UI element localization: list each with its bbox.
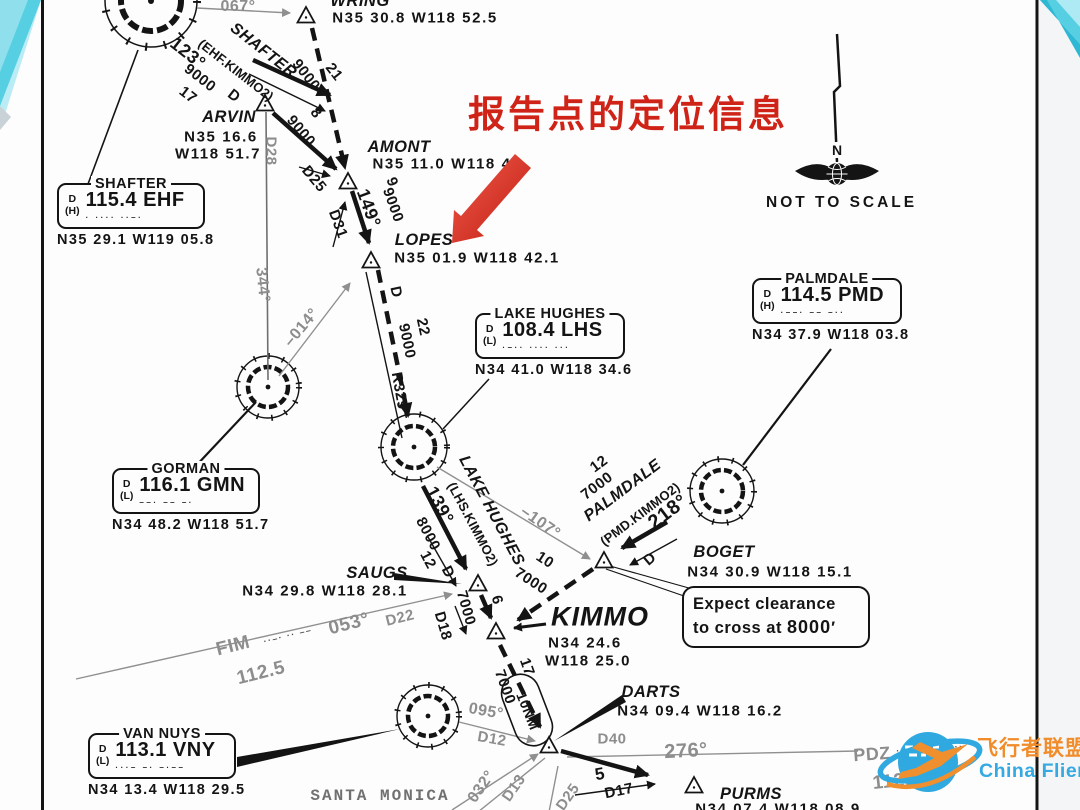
vor-rose-van-nuys [397,685,459,747]
fix-wring-coords: N35 30.8 W118 52.5 [332,11,498,26]
navaid-name: SHAFTER [91,176,171,192]
annotation-title: 报告点的定位信息 [468,84,788,138]
fix-darts-coords: N34 09.4 W118 16.2 [617,704,783,719]
fix-kimmo-lat: N34 24.6 [548,636,622,651]
fix-kimmo-lon: W118 25.0 [545,654,631,669]
navaid-frequency: 116.1 GMN [139,474,245,497]
fix-darts-name: DARTS [621,684,680,701]
expect-altitude: 8000 [787,617,831,637]
navaid-frame: SHAFTERD(H)115.4 EHF· ···· ··–· [57,183,205,229]
fix-saugs-coords: N34 29.8 W118 28.1 [242,584,408,599]
navaid-morse-code: ·–·· ···· ··· [502,343,602,352]
navaid-morse-code: ·––· –– –·· [781,308,884,317]
navaid-frequency: 115.4 EHF [86,189,185,212]
navaid-frame: VAN NUYSD(L)113.1 VNY···– –· –·–– [88,733,236,779]
expect-clearance-note: Expect clearance to cross at 8000′ [682,586,870,648]
fix-amont-name: AMONT [368,139,431,156]
navaid-pdz: PDZ [853,744,892,765]
corner-decoration-top-left [0,0,41,130]
expect-line2: to cross at 8000′ [693,615,859,639]
navaid-name: VAN NUYS [119,726,205,742]
fix-kimmo-name: KIMMO [551,604,649,631]
fix-lopes-name: LOPES [395,232,453,249]
navaid-class: D(L) [120,479,133,501]
navaid-box-lake-hughes: LAKE HUGHESD(L)108.4 LHS·–·· ···· ···N34… [475,313,625,378]
navaid-class: D(H) [760,289,775,311]
fix-arvin-lon: W118 51.7 [175,147,261,162]
fix-arvin-name: ARVIN [202,109,256,126]
fix-lopes-coords: N35 01.9 W118 42.1 [394,251,560,266]
navaid-class: D(H) [65,194,80,216]
navaid-class: D(L) [96,744,109,766]
north-arrow [795,34,879,185]
dme-d40: D40 [597,732,626,747]
fix-purms-coords: N34 07.4 W118 08.9 [695,802,861,810]
navaid-coords: N34 41.0 W118 34.6 [475,362,625,378]
van-nuys-leader-wedge [237,729,400,767]
fix-wring-name: WRING [330,0,389,9]
slide-right-margin [1039,0,1080,810]
radial-276: 276° [664,740,708,762]
navaid-coords: N34 13.4 W118 29.5 [88,782,236,798]
dist-22: 22 [414,317,432,337]
navaid-name: GORMAN [147,461,224,477]
navaid-coords: N34 37.9 W118 03.8 [752,327,902,343]
pdz-freq: 112.2 [872,769,923,793]
navaid-morse-code: · ···· ··–· [86,213,185,222]
navaid-box-palmdale: PALMDALED(H)114.5 PMD·––· –– –··N34 37.9… [752,278,902,343]
vor-rose-lake-hughes [381,414,447,480]
navaid-name: PALMDALE [781,271,872,287]
navaid-box-gorman: GORMAND(L)116.1 GMN––· –– –·N34 48.2 W11… [112,468,260,533]
label-santa-monica: SANTA MONICA [310,788,449,804]
navaid-frequency: 108.4 LHS [502,319,602,342]
navaid-box-van-nuys: VAN NUYSD(L)113.1 VNY···– –· –·––N34 13.… [88,733,236,798]
vor-rose-palmdale [690,459,754,523]
north-label: N [831,142,843,158]
radial-067: 067° [220,0,255,15]
not-to-scale-label: NOT TO SCALE [766,194,917,212]
watermark-en-text: China Flier [979,760,1080,783]
fix-amont-coords: N35 11.0 W118 45 [372,157,521,172]
kimmo-pointer [514,624,546,628]
watermark-cn-text: 飞行者联盟 [977,732,1080,762]
fix-saugs-name: SAUGS [346,565,407,582]
navaid-box-shafter: SHAFTERD(H)115.4 EHF· ···· ··–·N35 29.1 … [57,183,205,248]
navaid-morse-code: ––· –– –· [139,498,245,507]
navaid-name: LAKE HUGHES [490,306,609,322]
radial-344: 344° [252,267,272,304]
fix-boget-name: BOGET [693,544,754,561]
slide: SHAFTERD(H)115.4 EHF· ···· ··–·N35 29.1 … [0,0,1080,810]
navaid-morse-code: ···– –· –·–– [115,763,215,772]
dme-d28: D28 [264,136,279,165]
navaid-frame: LAKE HUGHESD(L)108.4 LHS·–·· ···· ··· [475,313,625,359]
fix-boget-coords: N34 30.9 W118 15.1 [687,565,853,580]
fix-arvin-lat: N35 16.6 [184,130,258,145]
navaid-frame: PALMDALED(H)114.5 PMD·––· –– –·· [752,278,902,324]
navaid-class: D(L) [483,324,496,346]
expect-line1: Expect clearance [693,593,859,615]
navaid-frame: GORMAND(L)116.1 GMN––· –– –· [112,468,260,514]
navaid-frequency: 113.1 VNY [115,739,215,762]
navaid-frequency: 114.5 PMD [781,284,884,307]
navaid-coords: N34 48.2 W118 51.7 [112,517,260,533]
navaid-coords: N35 29.1 W119 05.8 [57,232,205,248]
